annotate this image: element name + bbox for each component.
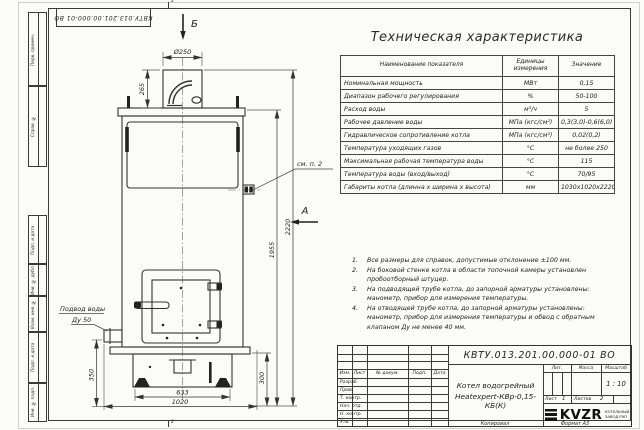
note-item: 4. На отводящей трубе котла, до запорной…: [352, 304, 626, 333]
masshtab-label: Масштаб: [601, 366, 631, 371]
note-item: 1. Все размеры для справок, допустимые о…: [352, 256, 626, 266]
tech-characteristics-table: Наименование показателя Единицы измерени…: [340, 55, 615, 194]
sheets-value: 2: [600, 396, 604, 402]
kvzr-logo-icon: [545, 409, 557, 421]
col-header-units: Единицы измерения: [503, 56, 559, 77]
col-data: Дата: [431, 371, 448, 376]
table-row: Расход водым³/ч5: [341, 103, 615, 116]
table-row: Диапазон рабочего регулирования%50-100: [341, 90, 615, 103]
water-inlet-label-1: Подвод воды: [60, 305, 105, 313]
title-block-designation: КВТУ.013.201.00.000-01 ВО: [448, 346, 631, 364]
lit-label: Лит.: [543, 366, 571, 371]
notes-list: 1. Все размеры для справок, допустимые о…: [352, 256, 626, 332]
format-label: Формат А3: [545, 421, 605, 427]
tech-table-title: Техническая характеристика: [338, 30, 616, 45]
row-nachotd: Нач. отд.: [340, 404, 362, 409]
table-row: Гидравлическое сопротивление котлаМПа (к…: [341, 129, 615, 142]
product-name-line2: Heatexpert-КВр-0,15-КБ(К): [448, 392, 543, 410]
col-header-value: Значение: [559, 56, 615, 77]
dim-1955: 1955: [268, 242, 276, 259]
upper-door-hinge-left: [125, 127, 129, 152]
table-row: Габариты котла (длинна х ширина х высота…: [341, 181, 615, 194]
centerline: [183, 58, 261, 400]
water-inlet-callout: Подвод воды Ду 50: [59, 305, 107, 331]
dim-300: 300: [258, 372, 266, 384]
base-foot-left: [134, 378, 150, 387]
drawing-sheet: 2 2 КВТУ.013.201.00.000-01 ВО Перв. прим…: [0, 0, 644, 430]
table-row: Температура уходящих газов°Сне более 250: [341, 142, 615, 155]
product-name: Котел водогрейный Heatexpert-КВр-0,15-КБ…: [448, 364, 543, 426]
table-row: Номинальная мощностьМВт0,15: [341, 77, 615, 90]
dim-1020: 1020: [172, 398, 189, 406]
row-utv: Утв.: [340, 420, 350, 425]
top-pin-left: [127, 96, 130, 108]
table-row: Рабочее давление водыМПа (кгс/см²)0,3(3,…: [341, 116, 615, 129]
sheet-value: 1: [562, 396, 566, 402]
dimension-texts: Ø250 265 2220 1955 300 350 633 1020: [88, 48, 293, 406]
boiler-outline: [104, 70, 254, 387]
row-prov: Пров.: [340, 388, 353, 393]
extension-lines: [92, 52, 297, 410]
water-inlet-pipe: [104, 330, 122, 342]
dim-2220: 2220: [284, 219, 292, 236]
lower-door: [142, 270, 220, 343]
sheet-label: Лист: [545, 397, 557, 402]
row-razrab: Разраб.: [340, 380, 358, 385]
bottom-plate: [110, 347, 250, 354]
table-header-row: Наименование показателя Единицы измерени…: [341, 56, 615, 77]
handle-grip: [134, 302, 141, 309]
view-a-label: А: [301, 206, 309, 217]
product-name-line1: Котел водогрейный: [457, 381, 535, 390]
note-item: 2. На боковой стенке котла в области топ…: [352, 266, 626, 285]
water-inlet-label-2: Ду 50: [71, 316, 91, 324]
table-row: Температура воды (вход/выход)°С70/95: [341, 168, 615, 181]
title-block: Изм. Лист № докум. Подп. Дата Разраб. Пр…: [337, 345, 632, 427]
table-row: Максимальная рабочая температура воды°С1…: [341, 155, 615, 168]
top-pin-right: [236, 96, 239, 108]
col-list: Лист: [352, 371, 367, 376]
view-b-arrowhead: [180, 31, 185, 40]
top-plate: [118, 108, 245, 116]
view-arrows: Б А: [180, 14, 318, 225]
dim-350: 350: [88, 369, 96, 381]
row-tkontr: Т. контр.: [340, 396, 361, 401]
massa-label: Масса: [571, 366, 601, 371]
note-item: 3. На подводящей трубе котла, до запорно…: [352, 285, 626, 304]
dim-633: 633: [176, 389, 188, 397]
col-izm: Изм.: [338, 371, 352, 376]
sheets-label: Листов: [574, 397, 591, 402]
damper-elbow: [167, 83, 201, 106]
dim-265: 265: [138, 83, 146, 95]
upper-door-hinge-right: [236, 127, 240, 152]
view-b-label: Б: [191, 19, 198, 30]
col-podp: Подп.: [408, 371, 431, 376]
col-dokum: № докум.: [367, 371, 408, 376]
see-note-label: см. п. 2: [297, 160, 322, 168]
scale-value: 1 : 10: [601, 373, 631, 394]
copied-label: Копировал: [460, 421, 530, 427]
dim-d250: Ø250: [173, 48, 192, 56]
row-nkontr: Н. контр.: [340, 412, 362, 417]
company-name: КОТЕЛЬНЫЙ ЗАВОД РЭП: [605, 410, 629, 419]
col-header-name: Наименование показателя: [341, 56, 503, 77]
